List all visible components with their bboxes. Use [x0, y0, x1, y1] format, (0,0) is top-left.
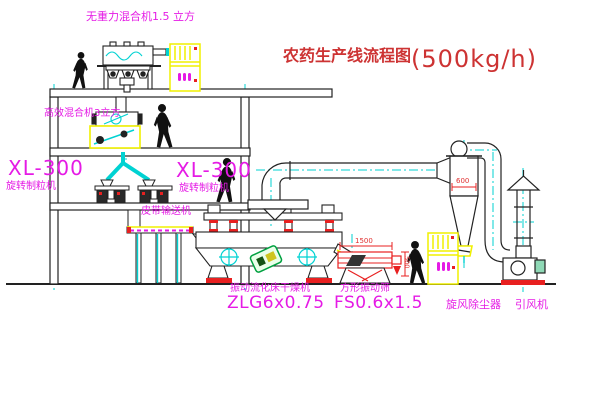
- label-belt-conveyor: 皮带输送机: [141, 207, 191, 217]
- label-granulator-left-name: 旋转制粒机: [6, 182, 56, 192]
- label-granulator-mid-model: XL-300: [176, 160, 252, 180]
- label-sieve-model: FS0.6x1.5: [334, 295, 423, 312]
- title-capacity: (500kg/h): [411, 45, 537, 73]
- dimension-cyclone-inlet: 600: [456, 178, 469, 185]
- vibrating-sieve-drawing: [338, 242, 409, 283]
- fan-drawing: [501, 246, 545, 285]
- gravity-free-mixer-drawing: [97, 42, 169, 92]
- control-cabinet-1-drawing: [170, 44, 200, 91]
- granulator-right-drawing: [138, 186, 172, 203]
- label-mixer-top: 无重力混合机1.5 立方: [86, 11, 195, 22]
- label-granulator-left-model: XL-300: [8, 158, 84, 178]
- label-mixer-second: 高效混合机3立方: [44, 109, 120, 119]
- granulator-hoppers: [101, 180, 155, 186]
- drawing-title: 农药生产线流程图(500kg/h): [283, 47, 537, 71]
- label-dryer-model: ZLG6x0.75: [227, 295, 325, 312]
- label-cyclone: 旋风除尘器: [446, 299, 501, 310]
- dimension-sieve-length: 1500: [355, 238, 373, 245]
- person-icon: [154, 104, 173, 148]
- granulator-left-drawing: [95, 186, 129, 203]
- person-icon: [72, 52, 88, 88]
- control-cabinet-2-drawing: [428, 233, 458, 284]
- process-flow-drawing: 农药生产线流程图(500kg/h) 无重力混合机1.5 立方 高效混合机3立方 …: [0, 0, 600, 403]
- label-fan: 引风机: [515, 299, 548, 310]
- title-text: 农药生产线流程图: [283, 46, 411, 65]
- exhaust-duct-drawing: [248, 157, 452, 220]
- mixer-3m3-drawing: [90, 97, 142, 148]
- label-granulator-mid-name: 旋转制粒机: [179, 184, 229, 194]
- dimension-sieve-height: 500: [404, 256, 411, 268]
